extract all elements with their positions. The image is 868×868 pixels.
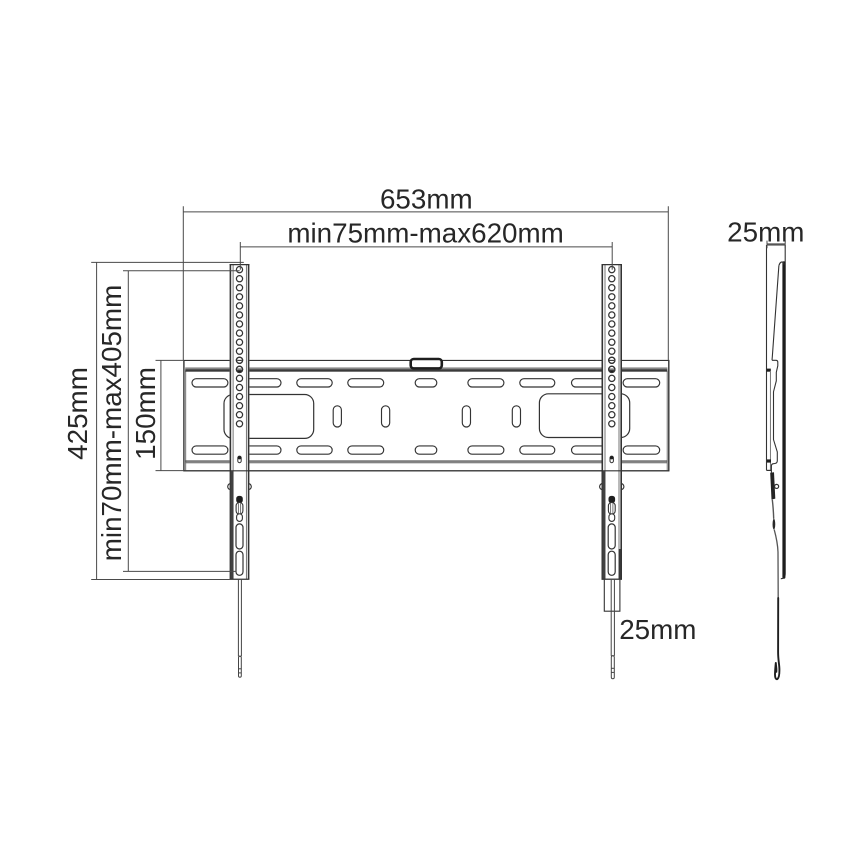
svg-text:425mm: 425mm [62,367,93,460]
svg-text:653mm: 653mm [380,184,473,215]
svg-text:25mm: 25mm [619,614,696,645]
svg-text:150mm: 150mm [130,367,161,460]
svg-text:min75mm-max620mm: min75mm-max620mm [287,218,563,249]
svg-text:min70mm-max405mm: min70mm-max405mm [96,285,127,561]
svg-text:25mm: 25mm [727,217,804,248]
